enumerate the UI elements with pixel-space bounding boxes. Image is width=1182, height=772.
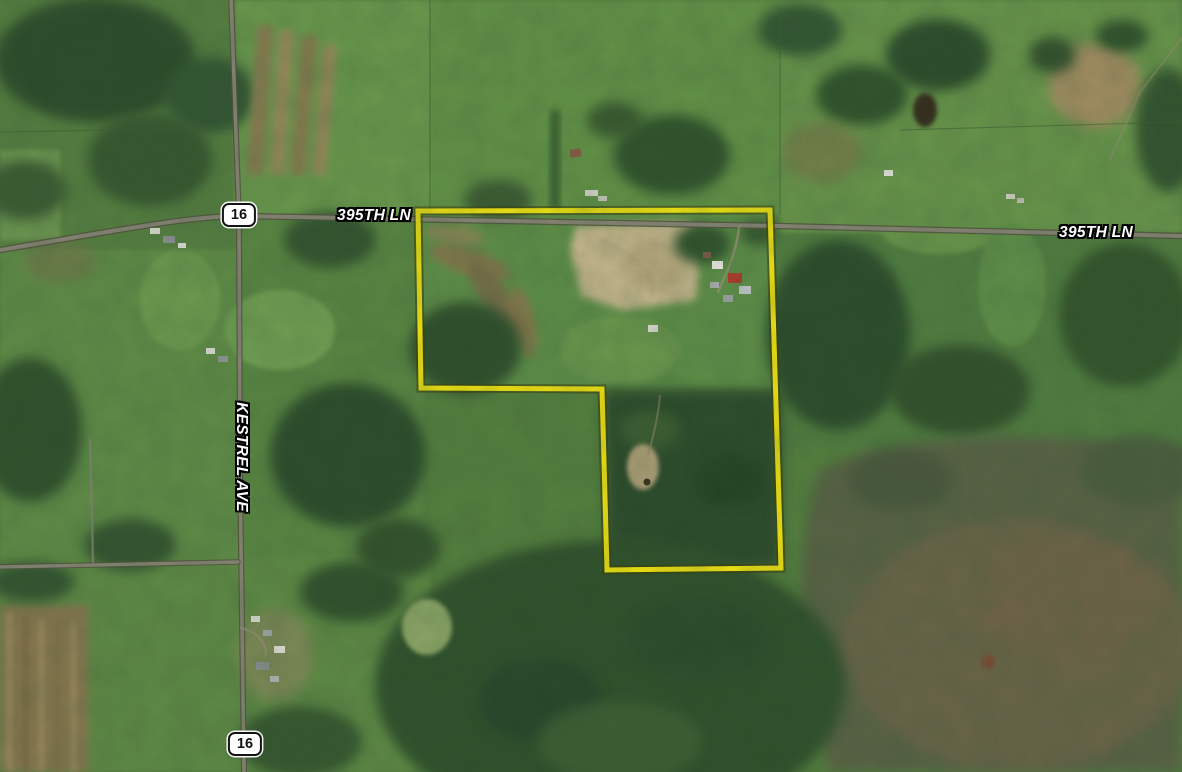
road-label-395th-ln-east: 395TH LN — [1059, 224, 1133, 242]
map-viewport[interactable]: 395TH LN 395TH LN KESTREL AVE 16 16 — [0, 0, 1182, 772]
route-16-shield-south: 16 — [228, 732, 262, 756]
road-label-395th-ln-west: 395TH LN — [337, 207, 411, 225]
satellite-map-canvas[interactable] — [0, 0, 1182, 772]
route-16-shield-north: 16 — [222, 203, 256, 227]
road-label-kestrel-ave: KESTREL AVE — [232, 402, 250, 512]
grain-overlay — [0, 0, 1182, 772]
